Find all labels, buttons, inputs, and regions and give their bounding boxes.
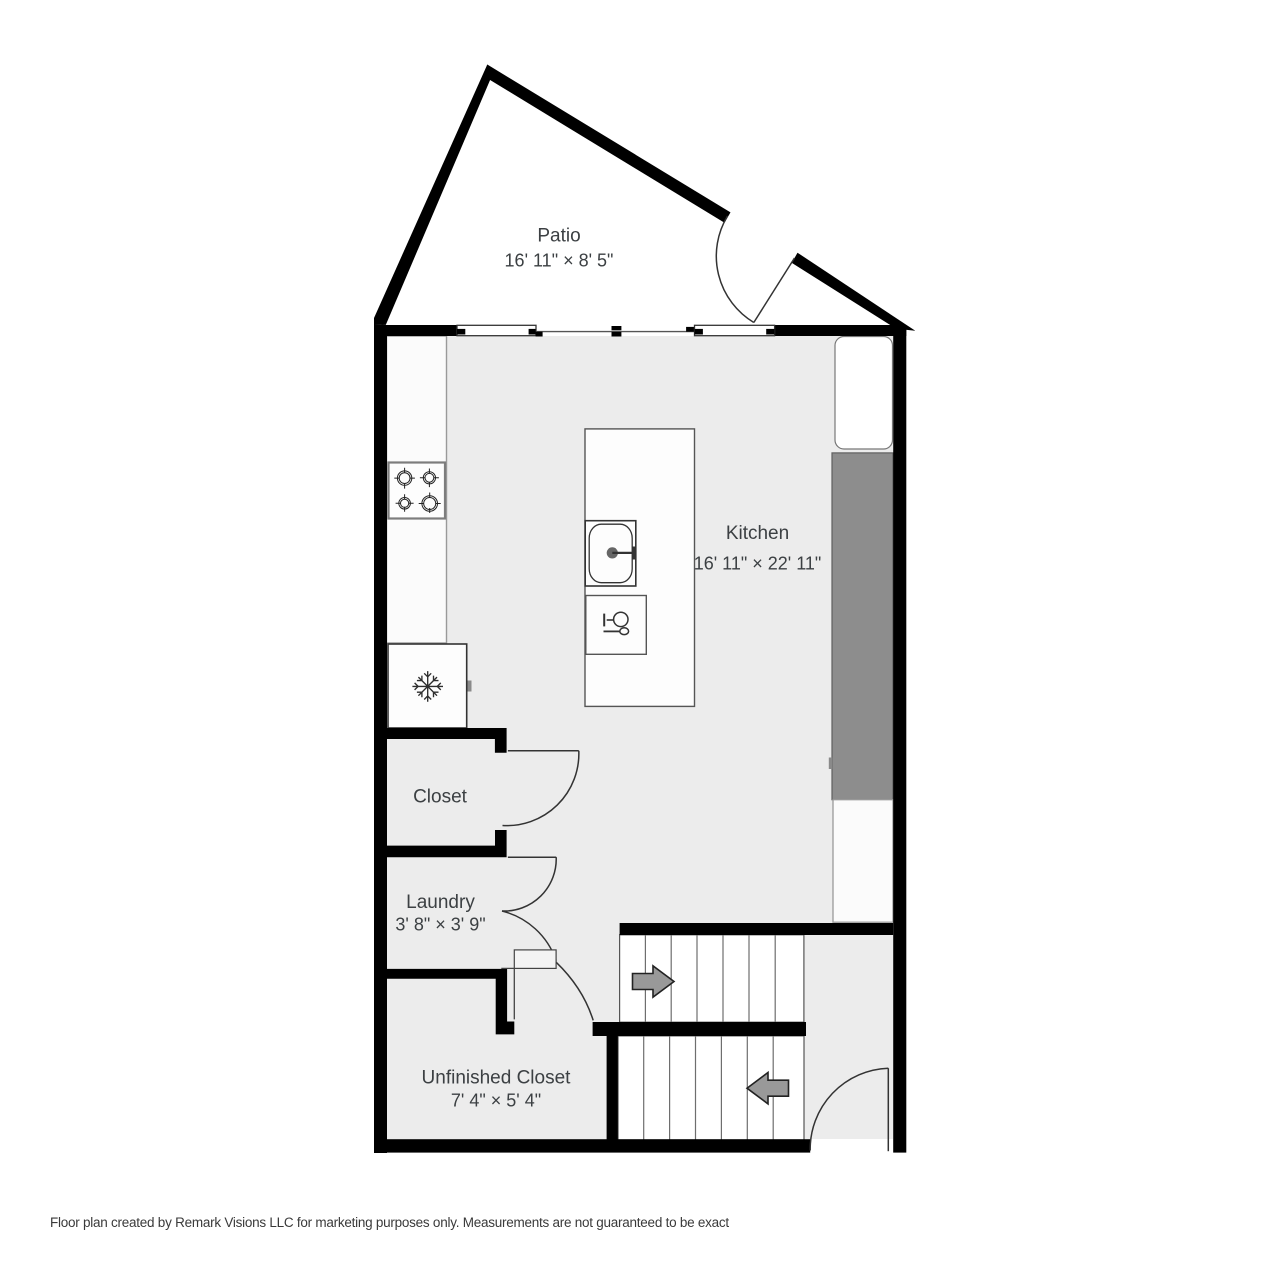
svg-text:Laundry: Laundry <box>406 892 475 913</box>
svg-text:16' 11" × 8' 5": 16' 11" × 8' 5" <box>505 251 614 271</box>
svg-text:3' 8" × 3' 9": 3' 8" × 3' 9" <box>395 915 485 935</box>
svg-text:Closet: Closet <box>413 787 468 808</box>
svg-text:7' 4" × 5' 4": 7' 4" × 5' 4" <box>451 1091 541 1111</box>
svg-text:Floor plan created by Remark V: Floor plan created by Remark Visions LLC… <box>50 1215 729 1230</box>
svg-text:Unfinished Closet: Unfinished Closet <box>422 1068 572 1089</box>
svg-text:Patio: Patio <box>537 226 580 247</box>
svg-text:16' 11" × 22' 11": 16' 11" × 22' 11" <box>694 554 822 574</box>
svg-text:Kitchen: Kitchen <box>726 523 789 544</box>
